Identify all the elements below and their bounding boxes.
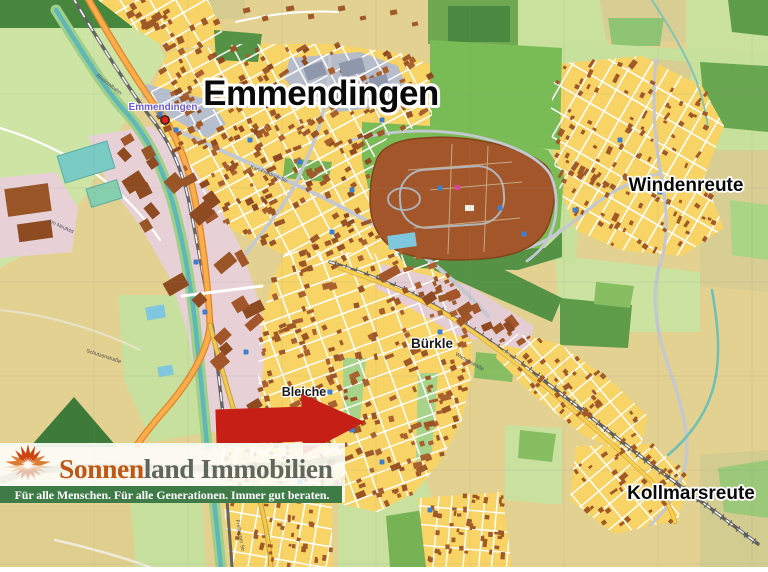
svg-text:Kollmarsreute: Kollmarsreute (627, 483, 755, 504)
svg-text:Für alle Menschen. Für alle Ge: Für alle Menschen. Für alle Generationen… (15, 488, 330, 502)
svg-text:Emmendingen: Emmendingen (129, 102, 198, 113)
svg-text:Windenreute: Windenreute (629, 175, 744, 196)
svg-text:Sonnenland Immobilien: Sonnenland Immobilien (59, 453, 333, 484)
svg-text:Bürkle: Bürkle (411, 336, 454, 351)
svg-text:Emmendingen: Emmendingen (203, 74, 439, 113)
